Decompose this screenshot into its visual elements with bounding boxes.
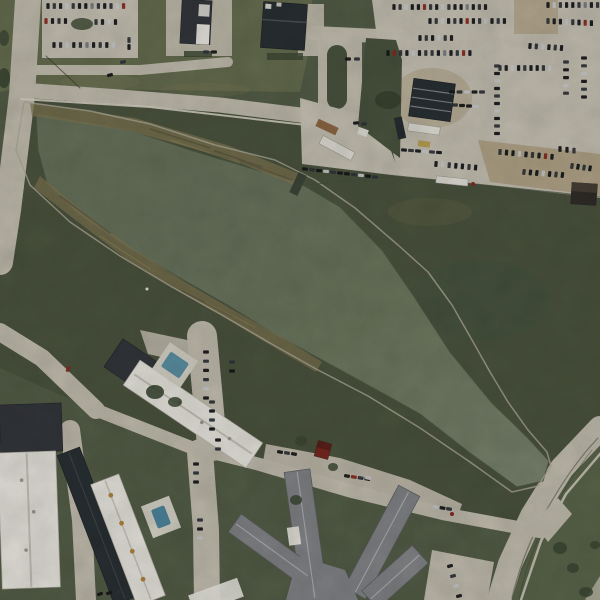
photo-grain-overlay [0,0,600,600]
aerial-photo [0,0,600,600]
satellite-view [0,0,600,600]
